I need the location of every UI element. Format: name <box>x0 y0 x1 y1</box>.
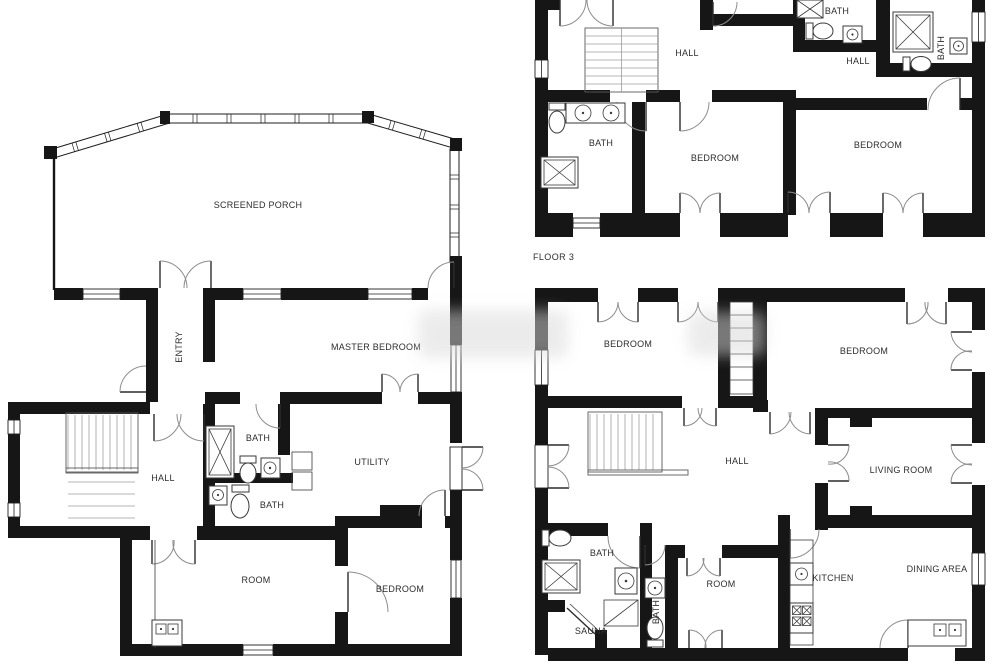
plan-floor2: BEDROOM BEDROOM HALL LIVING ROOM BATH RO… <box>535 288 985 661</box>
room-label-bedroom: BEDROOM <box>376 584 424 594</box>
sink <box>843 26 862 43</box>
door <box>184 261 211 288</box>
window <box>573 218 600 228</box>
porch-window-band-right <box>366 114 458 149</box>
door <box>173 540 195 564</box>
toilet <box>806 23 833 39</box>
toilet <box>549 103 565 133</box>
porch-window-band-top <box>165 114 369 123</box>
toilet <box>903 57 931 72</box>
window <box>451 345 461 392</box>
closet <box>730 302 753 394</box>
room-label-bath-top: BATH <box>825 6 849 16</box>
room-label-bedroom-right: BEDROOM <box>854 140 902 150</box>
floorplan-page: SCREENED PORCH ENTRY MASTER BEDROOM BATH… <box>0 0 1000 666</box>
staircase <box>588 412 688 475</box>
double-door <box>535 445 569 488</box>
cabinet <box>292 472 312 490</box>
door <box>120 366 146 392</box>
door <box>560 0 586 26</box>
door <box>400 374 418 392</box>
french-door <box>680 193 720 213</box>
sink <box>790 563 813 585</box>
double-door <box>951 445 972 483</box>
kitchen-sink-unit <box>908 620 966 646</box>
room-label-kitchen: KITCHEN <box>812 573 853 583</box>
room-label-master-bedroom: MASTER BEDROOM <box>331 342 421 352</box>
room-label-bedroom-right: BEDROOM <box>840 346 888 356</box>
french-door <box>770 412 810 434</box>
door <box>680 102 709 131</box>
double-door <box>828 445 849 481</box>
floor3-caption: FLOOR 3 <box>533 252 574 262</box>
door <box>587 0 613 26</box>
sink <box>950 38 967 54</box>
window <box>451 560 461 598</box>
room-label-sauna: SAUNA <box>575 626 607 636</box>
room-label-bath: BATH <box>590 548 614 558</box>
double-sink-counter <box>566 103 625 123</box>
floorplan-image: SCREENED PORCH ENTRY MASTER BEDROOM BATH… <box>0 0 1000 666</box>
window <box>8 420 20 434</box>
double-door <box>951 332 972 370</box>
plan-floor1: SCREENED PORCH ENTRY MASTER BEDROOM BATH… <box>8 111 483 656</box>
room-label-living-room: LIVING ROOM <box>870 465 933 475</box>
staircase <box>585 28 658 92</box>
room-label-hall: HALL <box>675 48 699 58</box>
door <box>419 490 445 516</box>
room-label-screened-porch: SCREENED PORCH <box>214 200 303 210</box>
room-label-bedroom-center: BEDROOM <box>691 153 739 163</box>
shower <box>797 0 823 18</box>
kitchen-sink-unit <box>152 620 182 646</box>
room-label-utility: UTILITY <box>354 457 389 467</box>
door <box>790 529 819 558</box>
door <box>382 374 400 392</box>
window <box>535 60 548 78</box>
french-door <box>883 193 923 213</box>
stove <box>790 603 813 633</box>
shower <box>541 157 578 188</box>
toilet <box>231 485 249 518</box>
sink <box>645 578 665 598</box>
room-label-room: ROOM <box>707 579 736 589</box>
room-label-hall: HALL <box>725 456 749 466</box>
room-label-bath-lower: BATH <box>260 500 284 510</box>
window <box>83 289 120 299</box>
sauna-bench <box>604 600 638 626</box>
room-label-dining-area: DINING AREA <box>907 564 968 574</box>
window <box>243 289 281 299</box>
room-label-bath-left: BATH <box>589 138 613 148</box>
toilet <box>240 456 256 483</box>
shower <box>542 560 580 593</box>
porch-window-band-left <box>49 115 167 159</box>
room-label-bedroom-left: BEDROOM <box>604 339 652 349</box>
room-label-hall: HALL <box>151 473 175 483</box>
door <box>160 261 187 288</box>
window <box>972 12 985 42</box>
room-label-room: ROOM <box>242 575 271 585</box>
double-door <box>907 302 946 324</box>
french-window <box>598 302 638 322</box>
toilet <box>542 530 571 546</box>
room-label-bath-upper: BATH <box>246 433 270 443</box>
room-label-bath-right: BATH <box>936 36 946 60</box>
porch-window-band-side <box>450 149 459 262</box>
door <box>450 447 483 490</box>
sink <box>615 568 637 594</box>
shower <box>206 426 234 478</box>
sink <box>261 458 280 478</box>
cabinet <box>292 452 312 470</box>
window <box>368 289 412 299</box>
sink <box>209 486 227 505</box>
room-label-entry: ENTRY <box>174 331 184 363</box>
window <box>8 503 20 517</box>
door <box>880 620 908 648</box>
french-door <box>687 558 720 576</box>
room-label-hall-right: HALL <box>846 56 870 66</box>
window <box>243 645 273 655</box>
plan-floor3: HALL BATH HALL BATH BATH BEDROOM BEDROOM… <box>533 0 985 262</box>
staircase <box>66 413 138 518</box>
french-window <box>678 302 718 322</box>
door <box>256 404 280 428</box>
door <box>928 78 960 110</box>
french-door <box>684 408 716 426</box>
window <box>972 553 985 585</box>
french-door <box>689 630 722 648</box>
window <box>535 350 548 385</box>
shower <box>893 12 933 52</box>
room-label-bath-small: BATH <box>651 600 661 624</box>
